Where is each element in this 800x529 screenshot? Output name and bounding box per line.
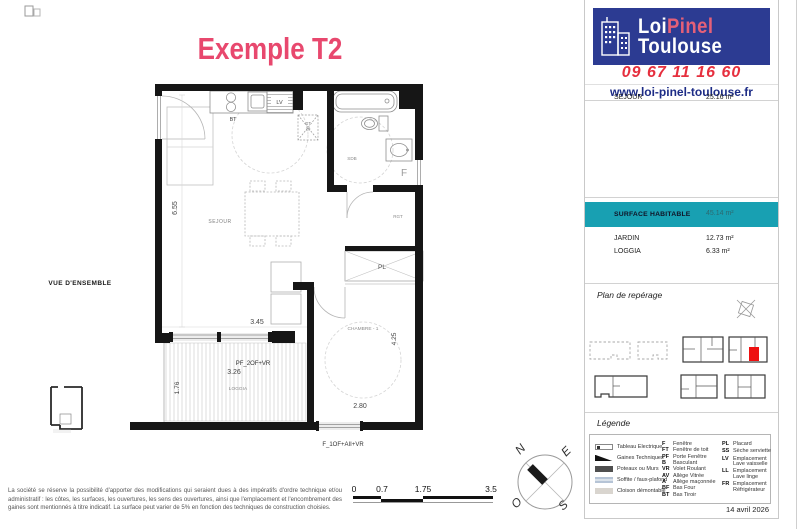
scale-tick-175: 1.75: [415, 484, 432, 494]
window-code-chambre: F_1OF+AII+VR: [322, 442, 364, 448]
window-code-f: F: [401, 168, 407, 179]
legend-material-row: Gaines Techniques: [595, 454, 664, 462]
code: LL: [722, 469, 733, 480]
room-label-chambre: CHAMBRE - 1: [348, 326, 379, 332]
poteaux-murs-swatch: [595, 466, 613, 473]
scale-tick-07: 0.7: [376, 484, 388, 494]
code: PL: [722, 442, 733, 448]
furniture: [167, 107, 301, 324]
legend-title: Légende: [597, 418, 630, 428]
legend-material-row: Poteaux ou Murs: [595, 465, 659, 473]
reperage-thumbnail-highlighted: [727, 334, 769, 365]
fixture-label-gt2: 20: [306, 127, 311, 132]
area-label: LOGGIA: [614, 248, 641, 255]
surface-habitable-label: SURFACE HABITABLE: [614, 211, 691, 218]
area-row-sejour: SEJOUR 25.16 m²: [585, 94, 778, 106]
code-label: Sèche serviette: [733, 449, 773, 455]
code-label: Placard: [733, 442, 773, 448]
placard-label: PL: [378, 264, 386, 271]
area-value: 12.73 m²: [706, 235, 734, 242]
compass-e: E: [558, 443, 574, 459]
legend-material-row: Tableau Electrique: [595, 443, 662, 451]
compass-n: N: [512, 441, 528, 457]
sofa: [271, 262, 301, 324]
door-swings: [162, 96, 373, 318]
cloison-swatch: [595, 488, 613, 495]
surface-habitable-value: 45.14 m²: [706, 210, 734, 217]
compass-rose: N E O S: [503, 436, 587, 520]
scale-tick-0: 0: [352, 484, 357, 494]
fixture-label-lv: LV: [276, 100, 283, 106]
code-label: Bas Tiroir: [673, 493, 696, 499]
info-sidebar: LoiPinel Toulouse 09 67 11 16 60 www.loi…: [584, 0, 779, 519]
legend-codes-column-2: PLPlacard SSSèche serviette LVEmplacemen…: [722, 442, 773, 495]
tableau-electrique-swatch: [595, 444, 613, 451]
material-label: Poteaux ou Murs: [617, 466, 659, 472]
brand-wordmark: LoiPinel Toulouse: [638, 17, 722, 57]
north-crossed-icon: [735, 298, 757, 320]
buildings-icon: [598, 15, 634, 59]
highlighted-unit: [749, 347, 759, 361]
material-label: Tableau Electrique: [617, 444, 662, 450]
area-value: 25.16 m²: [706, 94, 734, 101]
reperage-thumbnail-dashed-1: [588, 338, 634, 364]
soffite-swatch: [595, 477, 613, 484]
code-label: Emplacement Lave vaisselle: [733, 457, 773, 468]
area-row-loggia: LOGGIA 6.33 m²: [585, 248, 778, 260]
area-row-jardin: JARDIN 12.73 m²: [585, 235, 778, 247]
material-label: Gaines Techniques: [617, 455, 664, 461]
reperage-thumbnail-3: [681, 334, 725, 365]
scale-bar-rule: [353, 496, 493, 503]
reperage-thumbnail-6: [679, 373, 719, 400]
code: LV: [722, 457, 733, 468]
toilet: [379, 116, 388, 131]
scale-bar: 0 0.7 1.75 3.5: [350, 484, 500, 506]
room-label-sdb: SDB: [347, 156, 356, 161]
floorplan-sheet: Exemple T2 VUE D'ENSEMBLE: [0, 0, 800, 529]
reperage-thumbnail-7: [723, 373, 767, 400]
legend-material-row: Soffite / faux-plafond: [595, 476, 667, 484]
window-code-loggia: PF_2OF+VR: [236, 361, 271, 367]
dim-sejour-width: 3.45: [250, 319, 264, 326]
area-label: JARDIN: [614, 235, 639, 242]
reperage-thumbnail-5: [593, 373, 649, 400]
fixture-label-bt: BT: [230, 117, 236, 123]
room-label-sejour: SEJOUR: [208, 219, 231, 225]
page-title: Exemple T2: [169, 31, 371, 67]
legend-material-row: Cloison démontable: [595, 487, 666, 495]
dim-chambre-height: 4.25: [391, 332, 398, 345]
dim-loggia-height: 1.76: [174, 381, 181, 394]
code: BT: [662, 493, 673, 499]
scale-tick-35: 3.5: [485, 484, 497, 494]
corner-mark-icon: [24, 3, 42, 18]
disclaimer-text: La société se réserve la possibilité d'a…: [8, 487, 342, 513]
page-edge-line: [796, 0, 797, 529]
legend-codes-column-1: FFenêtre FTFenêtre de toit PFPorte Fenêt…: [662, 442, 716, 499]
dim-loggia-width: 3.26: [227, 369, 241, 376]
fixture-label-gt: GT: [305, 121, 311, 126]
brand-word-toulouse: Toulouse: [638, 37, 722, 57]
code: FR: [722, 482, 733, 493]
code-label: Emplacement Réfrigérateur: [733, 482, 773, 493]
compass-s: S: [555, 498, 571, 514]
dim-chambre-width: 2.80: [353, 403, 367, 410]
surface-habitable-banner: SURFACE HABITABLE 45.14 m²: [585, 202, 778, 227]
phone-number: 09 67 11 16 60: [585, 64, 778, 82]
floorplan-drawing: SEJOUR LV BT GT 20 SDB F RGT PL CHAMBRE …: [120, 75, 460, 455]
gaines-techniques-swatch: [595, 455, 613, 462]
area-label: SEJOUR: [614, 94, 642, 101]
document-date: 14 avril 2026: [685, 505, 769, 514]
dim-left-height: 6.55: [172, 201, 179, 215]
loggia-area: [164, 335, 306, 422]
brand-logo: LoiPinel Toulouse: [593, 8, 770, 65]
material-label: Cloison démontable: [617, 488, 666, 494]
code: SS: [722, 449, 733, 455]
material-label: Soffite / faux-plafond: [617, 477, 667, 483]
dining-table: [245, 181, 299, 246]
reperage-thumbnail-dashed-2: [636, 338, 670, 364]
storage-label-rgt: RGT: [393, 214, 403, 219]
legend-box: Tableau Electrique Gaines Techniques Pot…: [589, 434, 771, 504]
overview-thumbnail: [44, 381, 88, 435]
reperage-title: Plan de repérage: [597, 290, 662, 300]
area-value: 6.33 m²: [706, 248, 730, 255]
room-label-loggia: LOGGIA: [229, 386, 248, 392]
code-label: Emplacement Lave linge: [733, 469, 773, 480]
